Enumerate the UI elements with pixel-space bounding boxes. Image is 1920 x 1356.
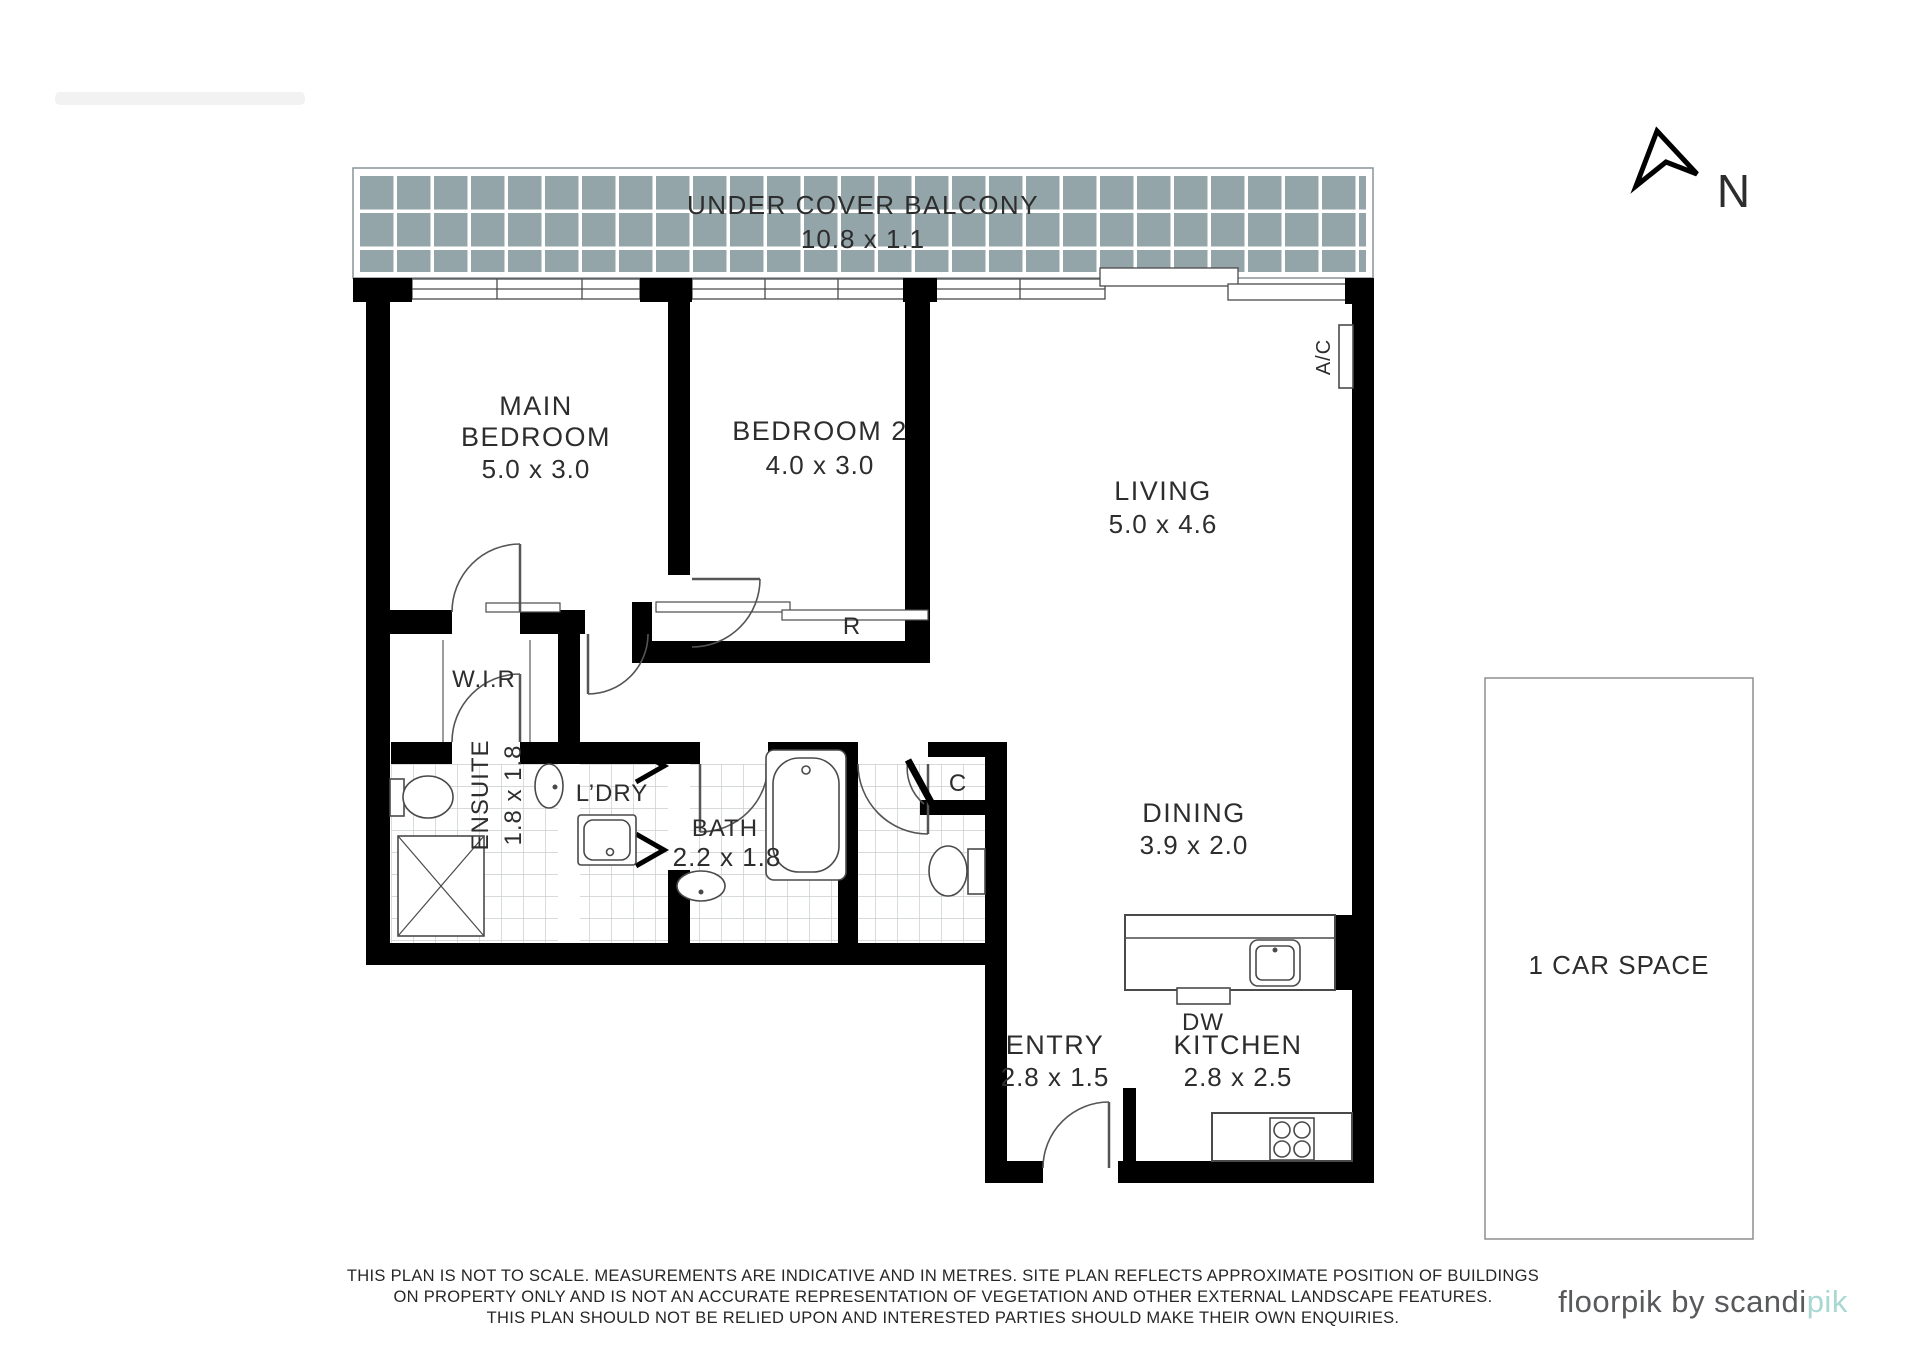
balcony-slider-panel-2 [1228,284,1352,300]
balcony-label: UNDER COVER BALCONY [687,190,1039,220]
living-label: LIVING [1114,476,1212,506]
main-bedroom-label-1: MAIN [499,391,573,421]
ensuite-dims: 1.8 x 1.8 [500,744,527,845]
bath-dims: 2.2 x 1.8 [673,842,782,872]
north-arrow: N [1636,131,1751,217]
kitchen-counter-icon [1125,915,1335,990]
wir-door [452,544,520,612]
laundry-label: L’DRY [576,780,649,807]
ensuite-label: ENSUITE [467,739,494,850]
bedroom2-dims: 4.0 x 3.0 [766,450,875,480]
ac-label: A/C [1313,339,1335,375]
ensuite-basin-icon [535,764,563,808]
cupboard-label: C [949,770,967,797]
entry-door [1043,1102,1109,1168]
main-bedroom-label-2: BEDROOM [461,422,611,452]
brand-prefix: floorpik by scandi [1558,1284,1807,1319]
dishwasher-label: DW [1182,1009,1224,1036]
bath-basin-icon [677,871,725,901]
dishwasher-box [1177,988,1230,1004]
scan-artifact [55,92,305,105]
kitchen-dims: 2.8 x 2.5 [1184,1062,1293,1092]
balcony: UNDER COVER BALCONY 10.8 x 1.1 [353,168,1373,278]
laundry-tub-icon [578,815,636,865]
disclaimer-line-2: ON PROPERTY ONLY AND IS NOT AN ACCURATE … [394,1288,1493,1306]
entry-dims: 2.8 x 1.5 [1001,1062,1110,1092]
bedroom2-label: BEDROOM 2 [732,416,908,446]
entry-label: ENTRY [1006,1030,1105,1060]
ensuite-toilet-icon [390,776,453,818]
kitchen-sink-icon [1250,940,1300,986]
bath-label: BATH [692,815,758,842]
dining-label: DINING [1142,798,1246,828]
north-label: N [1717,165,1751,217]
disclaimer-line-3: THIS PLAN SHOULD NOT BE RELIED UPON AND … [487,1309,1400,1327]
ac-unit-box [1339,325,1353,388]
dining-dims: 3.9 x 2.0 [1140,830,1249,860]
living-dims: 5.0 x 4.6 [1109,509,1218,539]
main-bedroom-dims: 5.0 x 3.0 [482,454,591,484]
floor-plan-page: UNDER COVER BALCONY 10.8 x 1.1 [0,0,1920,1356]
cooktop-counter-icon [1212,1113,1352,1161]
wir-opening-header [486,603,560,612]
car-space-label: 1 CAR SPACE [1528,950,1709,980]
robe-label: R [843,613,861,640]
north-arrow-icon [1636,131,1697,186]
wc-toilet-icon [929,846,985,896]
brand-logo: floorpik by scandipik [1558,1284,1848,1319]
bedroom2-door [692,579,760,647]
balcony-dims: 10.8 x 1.1 [801,224,925,254]
wir-label: W.I.R [452,666,516,693]
disclaimer-line-1: THIS PLAN IS NOT TO SCALE. MEASUREMENTS … [347,1267,1539,1285]
floor-plan-drawing: UNDER COVER BALCONY 10.8 x 1.1 [0,0,1920,1356]
car-space: 1 CAR SPACE [1485,678,1753,1239]
balcony-slider-panel-1 [1100,268,1238,286]
brand-suffix: pik [1807,1284,1848,1319]
footer: THIS PLAN IS NOT TO SCALE. MEASUREMENTS … [347,1267,1848,1327]
